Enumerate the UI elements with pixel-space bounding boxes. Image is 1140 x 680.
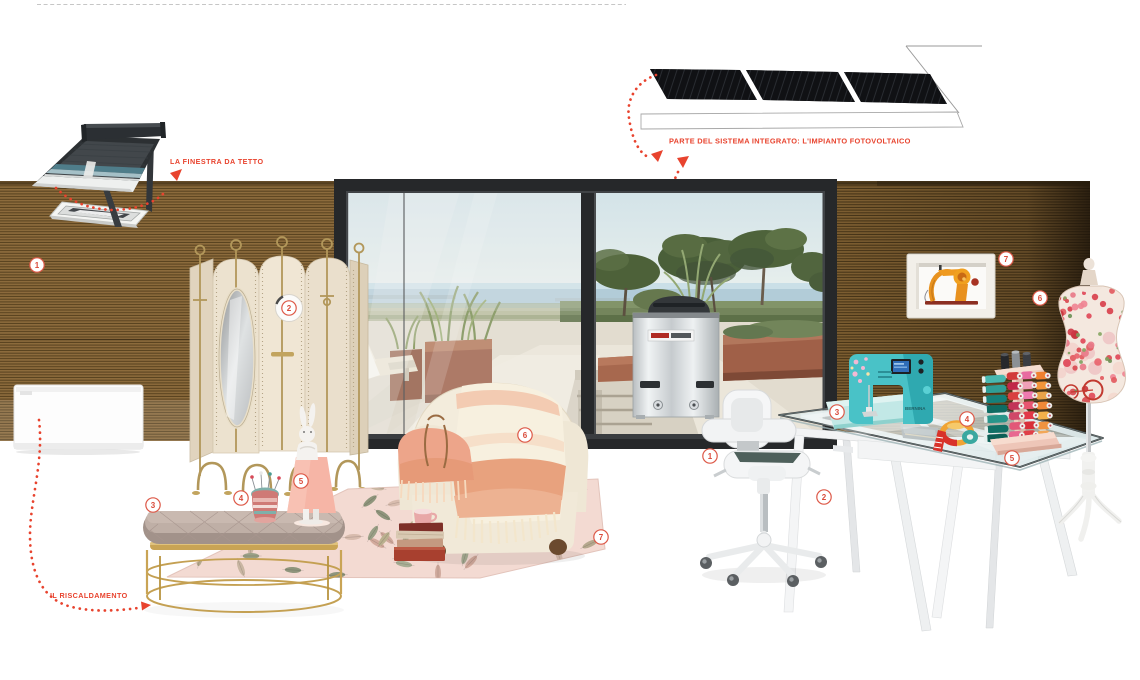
svg-text:4: 4 [965, 415, 970, 424]
svg-text:PARTE DEL SISTEMA INTEGRATO: L: PARTE DEL SISTEMA INTEGRATO: L'IMPIANTO … [669, 137, 911, 146]
svg-text:6: 6 [523, 431, 528, 440]
svg-text:5: 5 [299, 477, 304, 486]
svg-text:2: 2 [287, 304, 292, 313]
svg-text:6: 6 [1038, 294, 1043, 303]
svg-text:2: 2 [822, 493, 827, 502]
svg-text:1: 1 [35, 261, 40, 270]
svg-text:LA FINESTRA DA TETTO: LA FINESTRA DA TETTO [170, 157, 264, 166]
svg-text:3: 3 [835, 408, 840, 417]
svg-text:1: 1 [708, 452, 713, 461]
svg-text:7: 7 [599, 533, 604, 542]
svg-text:7: 7 [1004, 255, 1009, 264]
svg-text:BERNINA: BERNINA [905, 406, 926, 411]
svg-text:4: 4 [239, 494, 244, 503]
svg-text:IL RISCALDAMENTO: IL RISCALDAMENTO [50, 591, 128, 600]
svg-text:3: 3 [151, 501, 156, 510]
svg-text:5: 5 [1010, 454, 1015, 463]
